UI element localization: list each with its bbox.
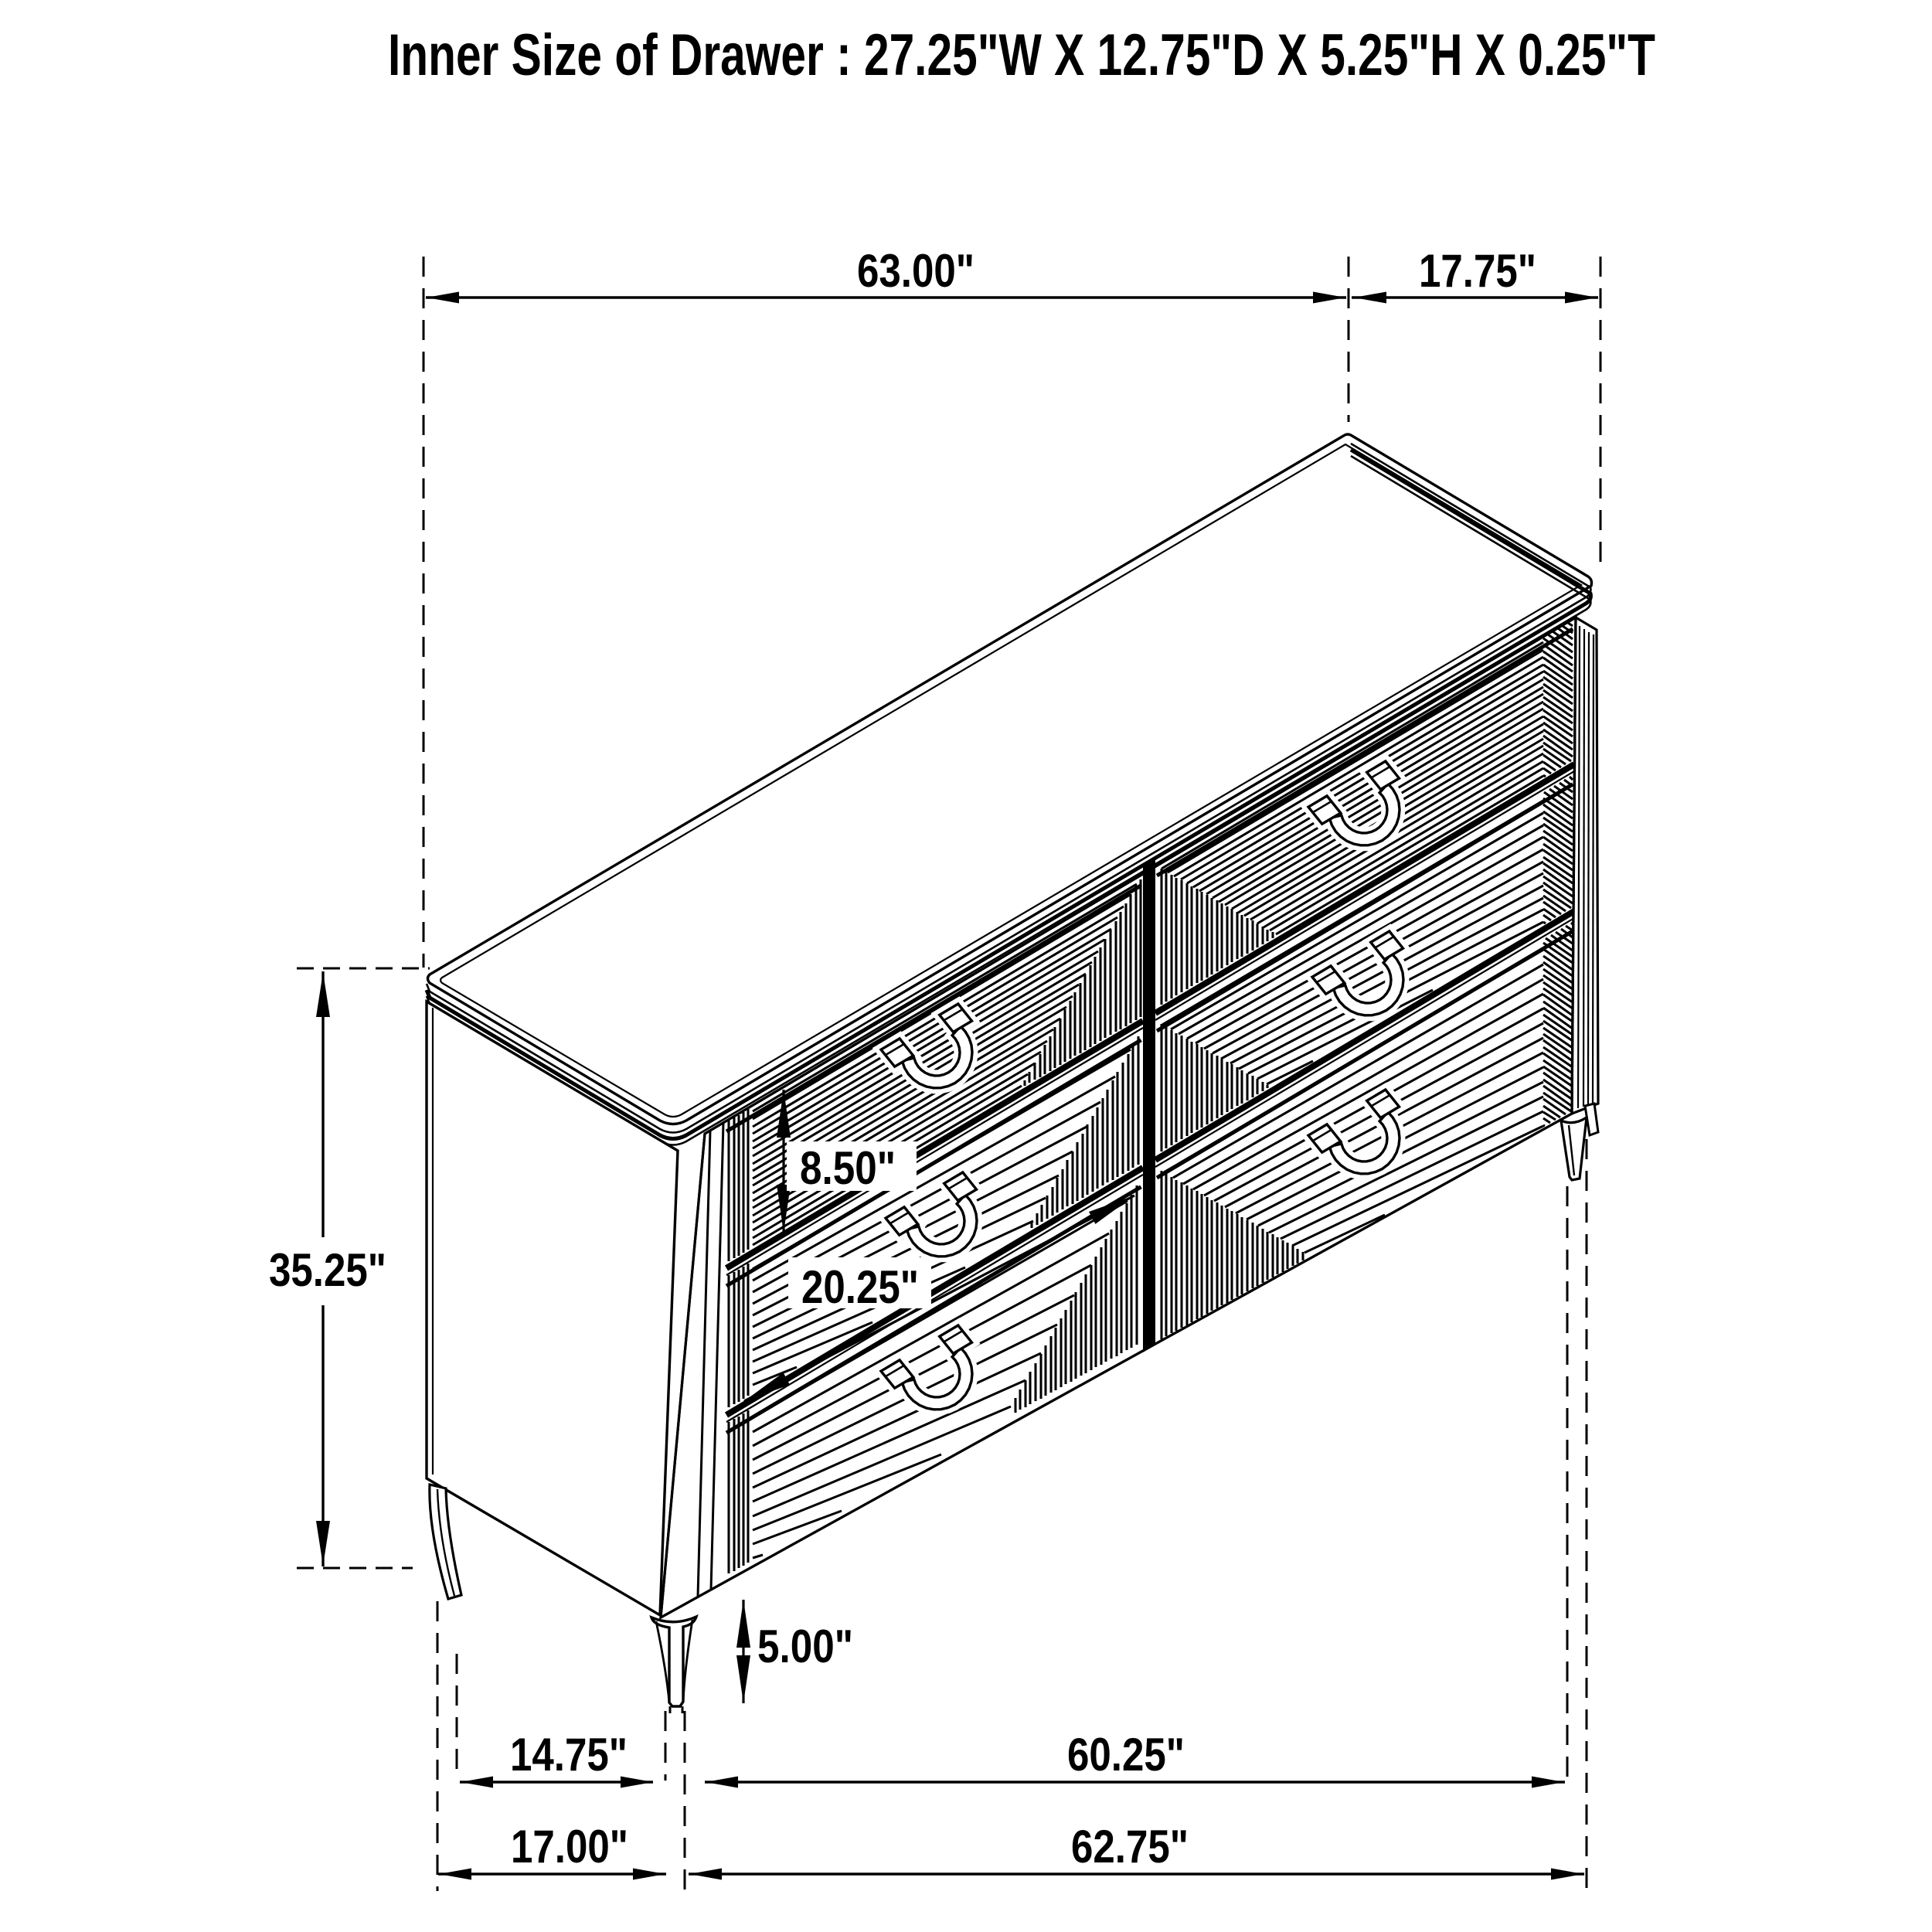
svg-text:62.75": 62.75" (1071, 1821, 1189, 1872)
svg-text:17.75": 17.75" (1419, 245, 1536, 297)
svg-text:60.25": 60.25" (1067, 1729, 1185, 1781)
svg-text:Inner Size of Drawer : 27.25"W: Inner Size of Drawer : 27.25"W X 12.75"D… (388, 22, 1655, 88)
svg-text:63.00": 63.00" (857, 245, 975, 297)
svg-text:8.50": 8.50" (800, 1142, 896, 1194)
svg-text:14.75": 14.75" (510, 1729, 628, 1781)
svg-text:17.00": 17.00" (511, 1821, 628, 1872)
svg-text:20.25": 20.25" (801, 1261, 919, 1313)
svg-text:5.00": 5.00" (757, 1621, 853, 1672)
svg-text:35.25": 35.25" (269, 1244, 386, 1296)
